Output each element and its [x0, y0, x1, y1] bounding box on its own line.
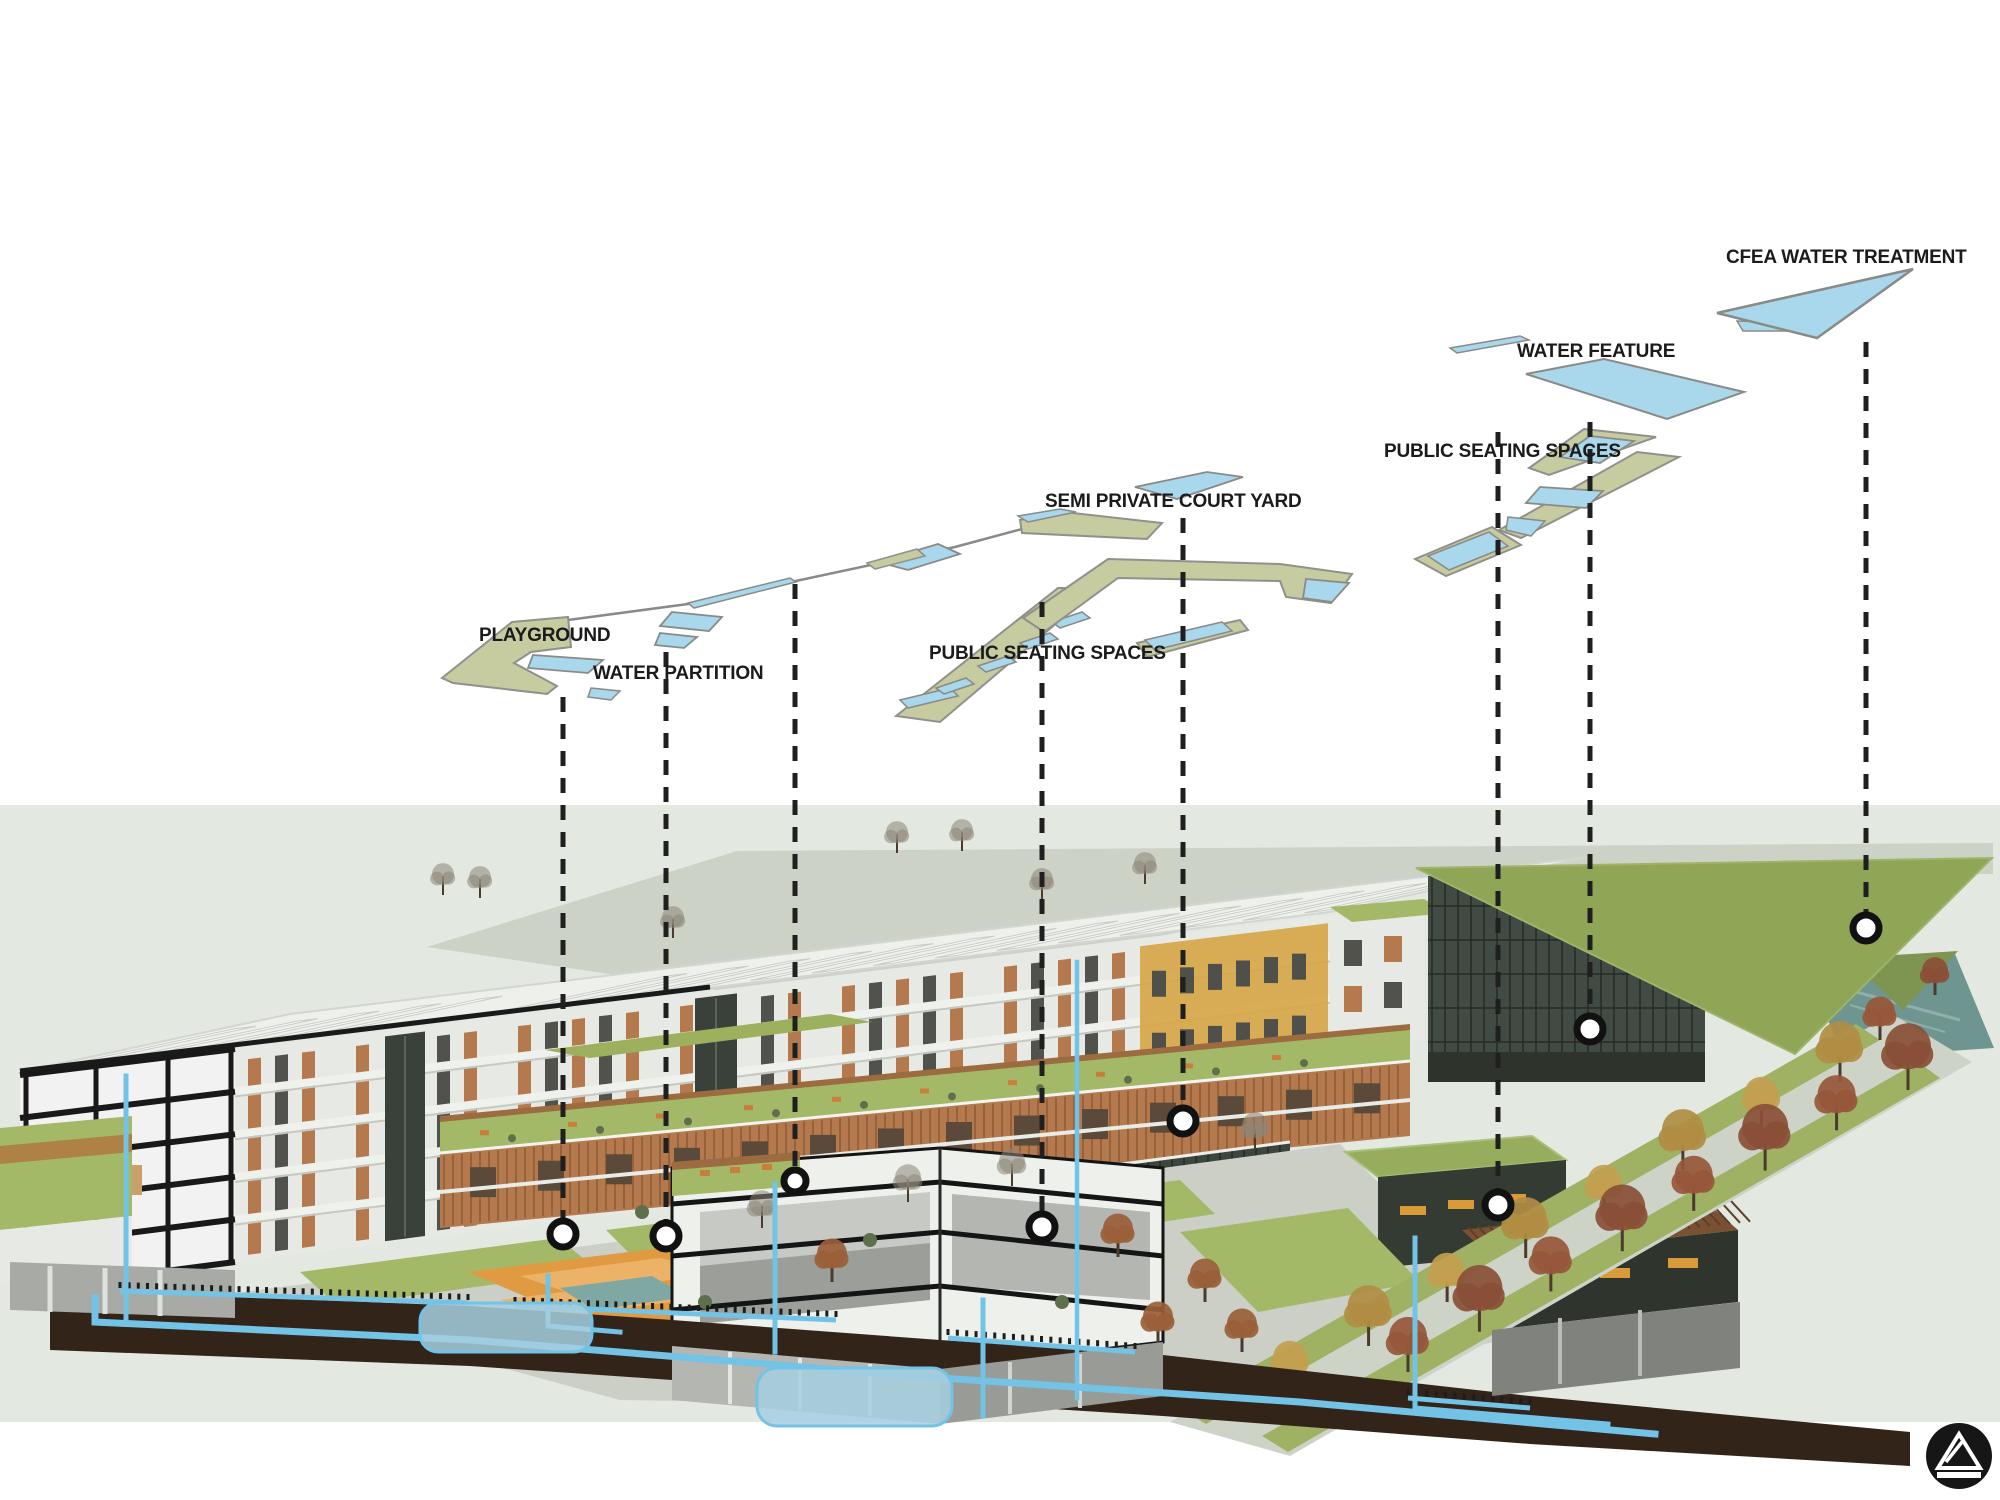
node-marker — [1853, 915, 1879, 941]
node-marker — [1485, 1192, 1511, 1218]
node-marker — [1577, 1016, 1603, 1042]
node-marker — [1170, 1108, 1196, 1134]
water-tank — [757, 1368, 952, 1426]
label-water-feature: WATER FEATURE — [1517, 342, 1675, 361]
label-cfea-water-treatment: CFEA WATER TREATMENT — [1726, 248, 1967, 267]
left-terrace-building — [0, 1116, 132, 1282]
label-public-seating-right: PUBLIC SEATING SPACES — [1384, 442, 1621, 461]
node-marker — [653, 1223, 679, 1249]
node-marker — [550, 1221, 576, 1247]
connector-lines — [568, 529, 1022, 620]
node-marker — [1029, 1214, 1055, 1240]
water-tank — [420, 1303, 592, 1352]
node-marker — [784, 1170, 806, 1192]
diagram-canvas — [0, 0, 2000, 1500]
diagram-page: PLAYGROUND WATER PARTITION PUBLIC SEATIN… — [0, 0, 2000, 1500]
plan-water-partition — [655, 544, 960, 648]
label-water-partition: WATER PARTITION — [593, 664, 763, 683]
plan-water-feature — [1450, 321, 1801, 419]
label-playground: PLAYGROUND — [479, 626, 610, 645]
label-semi-private-court-yard: SEMI PRIVATE COURT YARD — [1045, 492, 1302, 511]
label-public-seating-center: PUBLIC SEATING SPACES — [929, 644, 1166, 663]
architect-logo — [1926, 1423, 1992, 1489]
